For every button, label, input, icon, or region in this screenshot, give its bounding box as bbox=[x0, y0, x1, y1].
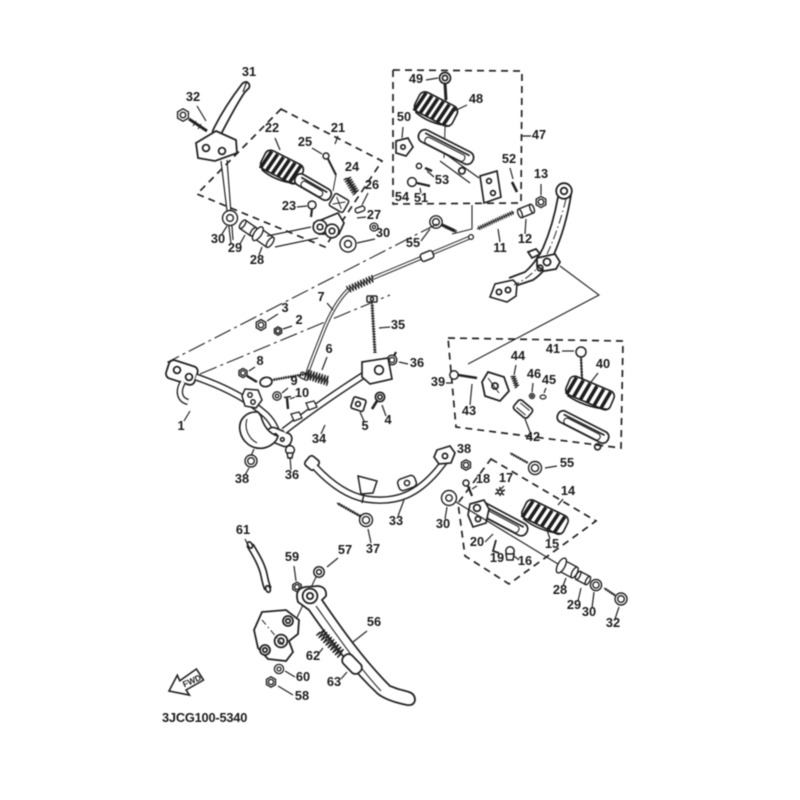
svg-text:32: 32 bbox=[606, 615, 620, 630]
svg-text:32: 32 bbox=[186, 89, 200, 104]
svg-text:6: 6 bbox=[325, 341, 332, 356]
svg-text:5: 5 bbox=[361, 418, 368, 433]
svg-text:31: 31 bbox=[242, 64, 256, 79]
svg-text:62: 62 bbox=[306, 648, 320, 663]
svg-text:1: 1 bbox=[177, 418, 184, 433]
svg-text:38: 38 bbox=[235, 471, 249, 486]
svg-text:41: 41 bbox=[546, 341, 560, 356]
svg-text:19: 19 bbox=[490, 550, 504, 565]
svg-text:49: 49 bbox=[409, 71, 423, 86]
svg-text:45: 45 bbox=[542, 372, 556, 387]
svg-text:24: 24 bbox=[345, 159, 360, 174]
svg-text:30: 30 bbox=[376, 225, 390, 240]
svg-text:40: 40 bbox=[596, 356, 610, 371]
svg-text:30: 30 bbox=[582, 604, 596, 619]
svg-text:28: 28 bbox=[250, 252, 264, 267]
svg-text:15: 15 bbox=[545, 536, 559, 551]
svg-text:37: 37 bbox=[366, 541, 380, 556]
svg-text:21: 21 bbox=[331, 120, 345, 135]
svg-text:7: 7 bbox=[317, 289, 324, 304]
svg-text:34: 34 bbox=[312, 431, 327, 446]
svg-text:2: 2 bbox=[295, 312, 302, 327]
svg-text:3JCG100-5340: 3JCG100-5340 bbox=[162, 710, 247, 725]
svg-text:8: 8 bbox=[256, 353, 263, 368]
svg-text:61: 61 bbox=[236, 522, 250, 537]
svg-text:58: 58 bbox=[295, 688, 309, 703]
svg-text:25: 25 bbox=[298, 134, 312, 149]
svg-text:33: 33 bbox=[389, 513, 403, 528]
svg-text:48: 48 bbox=[469, 91, 483, 106]
svg-text:30: 30 bbox=[436, 516, 450, 531]
svg-text:47: 47 bbox=[532, 127, 546, 142]
svg-text:13: 13 bbox=[534, 166, 548, 181]
svg-text:39: 39 bbox=[431, 374, 445, 389]
svg-text:10: 10 bbox=[295, 385, 309, 400]
svg-text:43: 43 bbox=[462, 403, 476, 418]
svg-text:36: 36 bbox=[410, 355, 424, 370]
svg-text:53: 53 bbox=[435, 172, 449, 187]
svg-text:23: 23 bbox=[282, 198, 296, 213]
svg-text:16: 16 bbox=[518, 553, 532, 568]
svg-text:38: 38 bbox=[457, 441, 471, 456]
svg-text:46: 46 bbox=[527, 366, 541, 381]
svg-text:55: 55 bbox=[406, 235, 420, 250]
svg-text:54: 54 bbox=[395, 189, 410, 204]
svg-text:26: 26 bbox=[365, 177, 379, 192]
svg-text:59: 59 bbox=[285, 549, 299, 564]
svg-text:22: 22 bbox=[265, 120, 279, 135]
svg-text:44: 44 bbox=[511, 348, 526, 363]
svg-text:52: 52 bbox=[502, 151, 516, 166]
svg-text:27: 27 bbox=[367, 207, 381, 222]
svg-text:17: 17 bbox=[499, 470, 513, 485]
svg-text:42: 42 bbox=[526, 429, 540, 444]
svg-text:57: 57 bbox=[338, 542, 352, 557]
svg-text:18: 18 bbox=[476, 471, 490, 486]
svg-text:20: 20 bbox=[470, 534, 484, 549]
svg-text:50: 50 bbox=[397, 109, 411, 124]
svg-text:3: 3 bbox=[281, 300, 288, 315]
svg-text:55: 55 bbox=[560, 455, 574, 470]
svg-text:11: 11 bbox=[493, 240, 507, 255]
svg-text:36: 36 bbox=[285, 467, 299, 482]
svg-text:28: 28 bbox=[553, 582, 567, 597]
svg-text:56: 56 bbox=[367, 614, 381, 629]
svg-text:14: 14 bbox=[561, 483, 576, 498]
svg-text:29: 29 bbox=[228, 240, 242, 255]
svg-text:60: 60 bbox=[296, 669, 310, 684]
svg-text:35: 35 bbox=[391, 317, 405, 332]
svg-text:63: 63 bbox=[327, 674, 341, 689]
